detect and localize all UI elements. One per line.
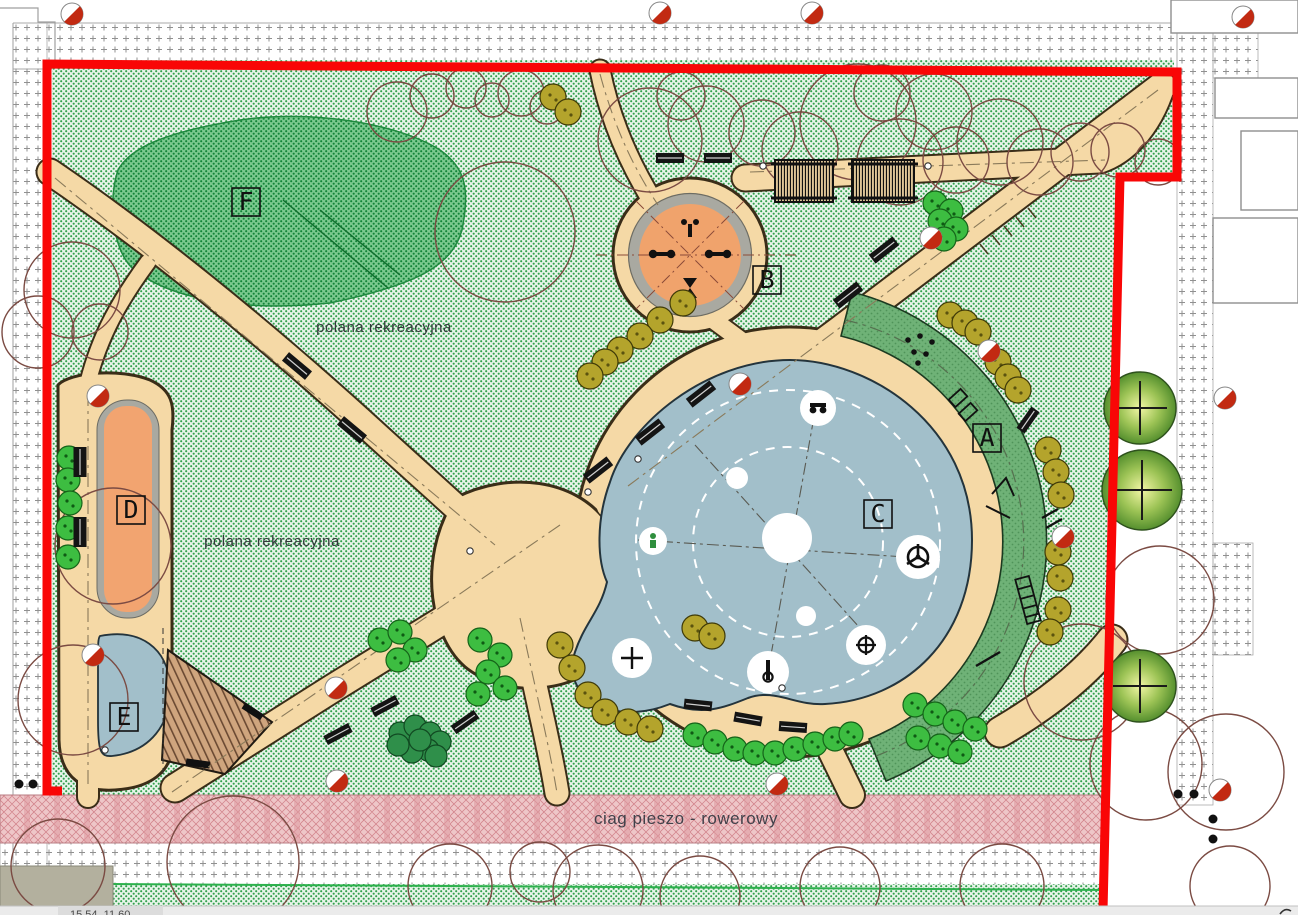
tree-dot bbox=[567, 664, 570, 667]
tree-dot bbox=[548, 93, 551, 96]
tree-dot bbox=[473, 690, 476, 693]
tree-dot bbox=[951, 225, 954, 228]
bench-icon bbox=[779, 721, 808, 733]
new-tree-icon bbox=[547, 632, 573, 658]
tree-dot bbox=[645, 725, 648, 728]
survey-marker-icon bbox=[978, 340, 1000, 362]
bench-icon bbox=[656, 153, 684, 163]
tree-dot bbox=[716, 743, 719, 746]
boundary-dot bbox=[15, 780, 24, 789]
tree-dot bbox=[399, 661, 402, 664]
tree-dot bbox=[661, 321, 664, 324]
survey-marker-icon bbox=[801, 2, 823, 24]
boundary-dot bbox=[1174, 790, 1183, 799]
tree-dot bbox=[696, 736, 699, 739]
tree-dot bbox=[1061, 579, 1064, 582]
building-right-3 bbox=[1213, 218, 1298, 303]
tree-dot bbox=[416, 651, 419, 654]
tree-dot bbox=[635, 332, 638, 335]
new-tree-icon bbox=[56, 545, 80, 569]
tree-dot bbox=[395, 628, 398, 631]
meadow-f-area bbox=[113, 117, 466, 306]
tree-dot bbox=[976, 730, 979, 733]
island bbox=[800, 390, 836, 426]
shrub-cluster-icon bbox=[425, 745, 447, 767]
tree-dot bbox=[979, 333, 982, 336]
bike-path-label: ciag pieszo - rowerowy bbox=[594, 809, 778, 828]
tree-dot bbox=[69, 529, 72, 532]
tree-dot bbox=[561, 646, 564, 649]
tree-dot bbox=[816, 745, 819, 748]
tree-dot bbox=[810, 740, 813, 743]
svg-text:B: B bbox=[759, 265, 774, 294]
tree-dot bbox=[973, 328, 976, 331]
meadow-f-shape bbox=[113, 117, 466, 306]
tree-dot bbox=[936, 715, 939, 718]
tree-dot bbox=[946, 207, 949, 210]
tree-dot bbox=[585, 372, 588, 375]
survey-marker-icon bbox=[325, 677, 347, 699]
tree-dot bbox=[591, 377, 594, 380]
building-right-2 bbox=[1241, 131, 1298, 210]
tree-dot bbox=[1051, 468, 1054, 471]
tree-dot bbox=[930, 199, 933, 202]
tree-dot bbox=[569, 113, 572, 116]
new-tree-icon bbox=[592, 699, 618, 725]
tree-dot bbox=[651, 730, 654, 733]
survey-marker-icon bbox=[649, 2, 671, 24]
site-plan: polana rekreacyjna polana rekreacyjna ci… bbox=[0, 0, 1298, 915]
tree-dot bbox=[501, 656, 504, 659]
survey-marker-icon bbox=[1214, 387, 1236, 409]
new-tree-icon bbox=[466, 682, 490, 706]
status-bar: 15.54, 11.60 bbox=[0, 906, 1298, 915]
tree-dot bbox=[916, 706, 919, 709]
island bbox=[796, 606, 816, 626]
tree-dot bbox=[64, 454, 67, 457]
new-tree-icon bbox=[577, 363, 603, 389]
tree-dot bbox=[913, 734, 916, 737]
svg-text:D: D bbox=[123, 495, 138, 524]
sidewalk-right-mid-chunk bbox=[1213, 543, 1253, 655]
svg-text:F: F bbox=[238, 187, 253, 216]
tree-dot bbox=[600, 708, 603, 711]
tree-dot bbox=[563, 108, 566, 111]
tree-dot bbox=[730, 745, 733, 748]
tree-dot bbox=[63, 524, 66, 527]
tree-dot bbox=[69, 558, 72, 561]
svg-text:A: A bbox=[979, 423, 994, 452]
new-tree-icon bbox=[555, 99, 581, 125]
tree-dot bbox=[410, 646, 413, 649]
sidewalk-right-corridor bbox=[1177, 33, 1213, 805]
tree-dot bbox=[690, 624, 693, 627]
tree-dot bbox=[846, 730, 849, 733]
tree-dot bbox=[945, 311, 948, 314]
status-bar-bg bbox=[0, 906, 1298, 915]
tree-dot bbox=[65, 499, 68, 502]
new-tree-icon bbox=[468, 628, 492, 652]
new-tree-icon bbox=[559, 655, 585, 681]
tree-dot bbox=[70, 459, 73, 462]
tree-dot bbox=[736, 750, 739, 753]
tree-dot bbox=[600, 358, 603, 361]
survey-marker-icon bbox=[82, 644, 104, 666]
lamp-icon bbox=[102, 747, 108, 753]
shrub-cluster-icon bbox=[387, 734, 409, 756]
svg-text:C: C bbox=[870, 499, 885, 528]
left-white-margin bbox=[0, 0, 13, 843]
tree-dot bbox=[960, 319, 963, 322]
tree-dot bbox=[1003, 373, 1006, 376]
existing-tree-icon bbox=[1190, 846, 1270, 915]
tree-dot bbox=[950, 718, 953, 721]
tree-dot bbox=[961, 753, 964, 756]
bench-icon bbox=[704, 153, 732, 163]
tree-dot bbox=[1019, 391, 1022, 394]
tree-dot bbox=[790, 745, 793, 748]
building-right-1 bbox=[1215, 78, 1298, 118]
new-tree-icon bbox=[386, 648, 410, 672]
lamp-icon bbox=[585, 489, 591, 495]
tree-dot bbox=[375, 636, 378, 639]
boundary-dot bbox=[1209, 835, 1218, 844]
tree-dot bbox=[641, 337, 644, 340]
tree-dot bbox=[71, 504, 74, 507]
tree-dot bbox=[483, 668, 486, 671]
tree-dot bbox=[684, 304, 687, 307]
tree-dot bbox=[919, 739, 922, 742]
tree-dot bbox=[393, 656, 396, 659]
boundary-dot bbox=[1209, 815, 1218, 824]
survey-marker-icon bbox=[1232, 6, 1254, 28]
tree-dot bbox=[1049, 451, 1052, 454]
tree-dot bbox=[776, 754, 779, 757]
tree-dot bbox=[713, 637, 716, 640]
tree-dot bbox=[606, 363, 609, 366]
lamp-icon bbox=[779, 685, 785, 691]
tree-dot bbox=[623, 718, 626, 721]
tree-dot bbox=[756, 754, 759, 757]
tree-dot bbox=[1062, 496, 1065, 499]
tree-dot bbox=[945, 240, 948, 243]
tree-dot bbox=[63, 476, 66, 479]
tree-dot bbox=[555, 641, 558, 644]
meadow-label-upper: polana rekreacyjna bbox=[316, 319, 452, 336]
tree-dot bbox=[690, 731, 693, 734]
tree-dot bbox=[750, 749, 753, 752]
tree-dot bbox=[952, 212, 955, 215]
new-tree-icon bbox=[1037, 619, 1063, 645]
new-tree-icon bbox=[699, 623, 725, 649]
bottom-left-gray-lot bbox=[0, 866, 113, 906]
tree-dot bbox=[63, 553, 66, 556]
island bbox=[726, 467, 748, 489]
meadow-label-lower: polana rekreacyjna bbox=[204, 533, 340, 550]
survey-marker-icon bbox=[326, 770, 348, 792]
boundary-dot bbox=[1190, 790, 1199, 799]
new-tree-icon bbox=[1043, 459, 1069, 485]
new-tree-icon bbox=[493, 676, 517, 700]
tree-dot bbox=[1053, 606, 1056, 609]
tree-dot bbox=[573, 669, 576, 672]
lamp-icon bbox=[760, 163, 766, 169]
island bbox=[762, 513, 812, 563]
tree-dot bbox=[69, 481, 72, 484]
new-tree-icon bbox=[58, 491, 82, 515]
svg-text:E: E bbox=[116, 702, 131, 731]
tree-dot bbox=[1056, 491, 1059, 494]
sidewalk-left-band bbox=[13, 23, 47, 890]
tree-dot bbox=[970, 725, 973, 728]
tree-dot bbox=[615, 346, 618, 349]
new-tree-icon bbox=[1048, 482, 1074, 508]
new-tree-icon bbox=[963, 717, 987, 741]
new-tree-icon bbox=[906, 726, 930, 750]
tree-dot bbox=[1055, 574, 1058, 577]
person-icon bbox=[650, 533, 656, 548]
new-tree-icon bbox=[670, 290, 696, 316]
survey-marker-icon bbox=[766, 773, 788, 795]
tree-dot bbox=[629, 723, 632, 726]
tree-dot bbox=[710, 738, 713, 741]
tree-dot bbox=[401, 633, 404, 636]
tree-dot bbox=[770, 749, 773, 752]
sidewalk-bottom-band bbox=[0, 843, 1107, 885]
tree-dot bbox=[479, 695, 482, 698]
tree-dot bbox=[1051, 633, 1054, 636]
new-tree-icon bbox=[839, 722, 863, 746]
tree-dot bbox=[956, 723, 959, 726]
tree-dot bbox=[589, 696, 592, 699]
shrub-cluster-icon bbox=[409, 729, 431, 751]
tree-dot bbox=[489, 673, 492, 676]
tree-dot bbox=[1045, 628, 1048, 631]
new-tree-icon bbox=[637, 716, 663, 742]
tree-dot bbox=[935, 742, 938, 745]
tree-dot bbox=[1057, 473, 1060, 476]
survey-marker-icon bbox=[1209, 779, 1231, 801]
tree-dot bbox=[910, 701, 913, 704]
tree-dot bbox=[830, 735, 833, 738]
tree-dot bbox=[707, 632, 710, 635]
tree-dot bbox=[852, 735, 855, 738]
tree-dot bbox=[930, 710, 933, 713]
tree-dot bbox=[475, 636, 478, 639]
tree-dot bbox=[481, 641, 484, 644]
tree-dot bbox=[955, 748, 958, 751]
sidewalk-right-top-chunk bbox=[1213, 33, 1258, 78]
bench-icon bbox=[74, 447, 87, 477]
new-tree-icon bbox=[1005, 377, 1031, 403]
lamp-icon bbox=[635, 456, 641, 462]
tree-dot bbox=[583, 691, 586, 694]
tree-dot bbox=[935, 217, 938, 220]
survey-marker-icon bbox=[87, 385, 109, 407]
tree-dot bbox=[957, 230, 960, 233]
new-tree-icon bbox=[948, 740, 972, 764]
tree-dot bbox=[836, 740, 839, 743]
tree-dot bbox=[381, 641, 384, 644]
tree-dot bbox=[1059, 611, 1062, 614]
tree-dot bbox=[606, 713, 609, 716]
survey-marker-icon bbox=[920, 227, 942, 249]
tree-dot bbox=[500, 684, 503, 687]
survey-marker-icon bbox=[61, 3, 83, 25]
plan-canvas: polana rekreacyjna polana rekreacyjna ci… bbox=[0, 0, 1298, 915]
tree-dot bbox=[1013, 386, 1016, 389]
tree-dot bbox=[1059, 553, 1062, 556]
survey-marker-icon bbox=[729, 373, 751, 395]
survey-marker-icon bbox=[1052, 526, 1074, 548]
pergola-icon bbox=[775, 160, 833, 202]
lamp-icon bbox=[925, 163, 931, 169]
tree-dot bbox=[678, 299, 681, 302]
tree-dot bbox=[655, 316, 658, 319]
tree-dot bbox=[1053, 548, 1056, 551]
tree-dot bbox=[941, 747, 944, 750]
tree-dot bbox=[506, 689, 509, 692]
lamp-icon bbox=[467, 548, 473, 554]
tree-dot bbox=[495, 651, 498, 654]
status-coordinates: 15.54, 11.60 bbox=[70, 909, 130, 915]
tree-dot bbox=[1043, 446, 1046, 449]
bench-icon bbox=[74, 517, 87, 547]
tree-dot bbox=[621, 351, 624, 354]
tree-dot bbox=[554, 98, 557, 101]
pergola-icon bbox=[852, 160, 914, 202]
new-tree-icon bbox=[1047, 565, 1073, 591]
tree-dot bbox=[796, 750, 799, 753]
boundary-dot bbox=[29, 780, 38, 789]
